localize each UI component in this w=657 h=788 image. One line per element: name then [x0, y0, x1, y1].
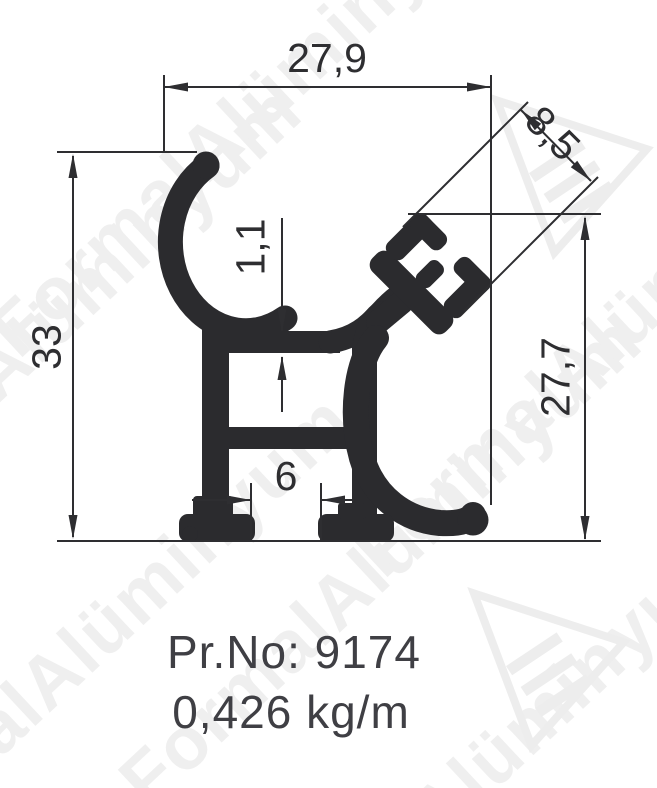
- profile-left-foot-toe: [182, 526, 198, 542]
- profile-middle-web: [227, 427, 355, 449]
- profile-top-hook-bulb: [193, 152, 220, 179]
- profile-right-foot-upstand: [338, 503, 366, 519]
- dimension-geometry: [57, 75, 601, 541]
- dimension-label-right-height: 27,7: [532, 337, 578, 417]
- profile-neck: [378, 302, 402, 322]
- product-number-text: Pr.No: 9174: [167, 626, 421, 678]
- dimension-label-top-width: 27,9: [287, 35, 367, 81]
- dimension-label-bottom-gap: 6: [275, 453, 298, 499]
- profile-technical-drawing: 27,9 33 1,1 8,5 27,7 6 Pr.No: 9174 0,426…: [0, 0, 657, 788]
- dimension-label-wall-thickness: 1,1: [227, 219, 273, 276]
- dimension-label-overall-height: 33: [23, 324, 69, 370]
- drawing-page: FormalAlüminyum FormalAlüminyum FormalAl…: [0, 0, 657, 788]
- profile-bottom-hook-bulb: [458, 505, 489, 536]
- product-weight-text: 0,426 kg/m: [172, 686, 410, 738]
- brand-logo-watermark: [450, 593, 628, 758]
- extrusion-profile-shape: [170, 152, 494, 543]
